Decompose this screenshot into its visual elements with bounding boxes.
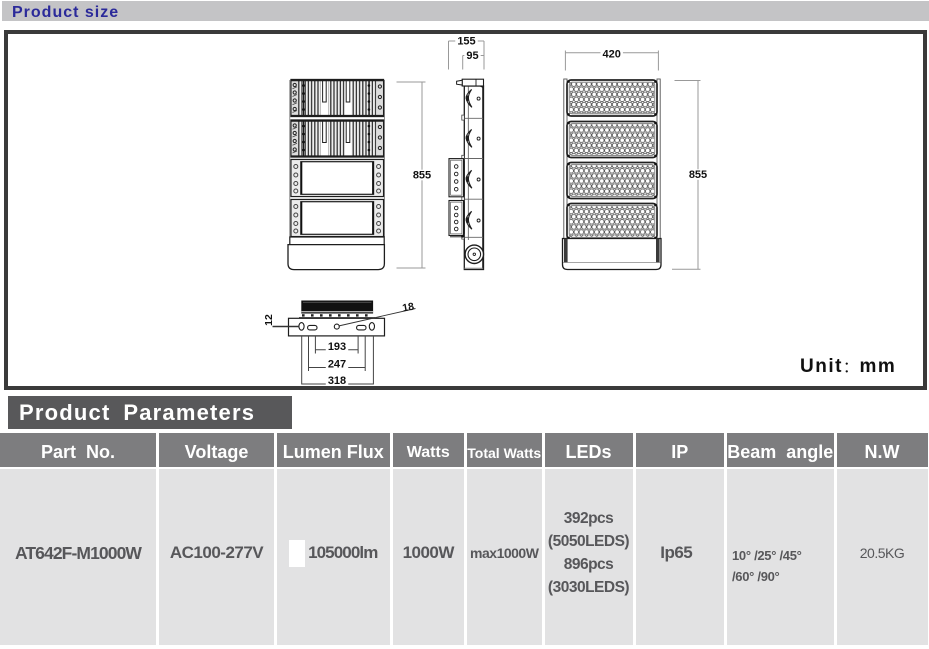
svg-text:193: 193 (328, 341, 346, 353)
svg-text:95: 95 (466, 50, 478, 62)
svg-text:855: 855 (689, 169, 707, 181)
svg-text:318: 318 (328, 375, 346, 387)
svg-text:855: 855 (413, 170, 431, 182)
svg-text:12: 12 (263, 314, 275, 326)
svg-text:420: 420 (603, 48, 621, 60)
svg-text:247: 247 (328, 359, 346, 371)
svg-text:155: 155 (457, 36, 475, 48)
svg-text:18: 18 (401, 301, 415, 315)
